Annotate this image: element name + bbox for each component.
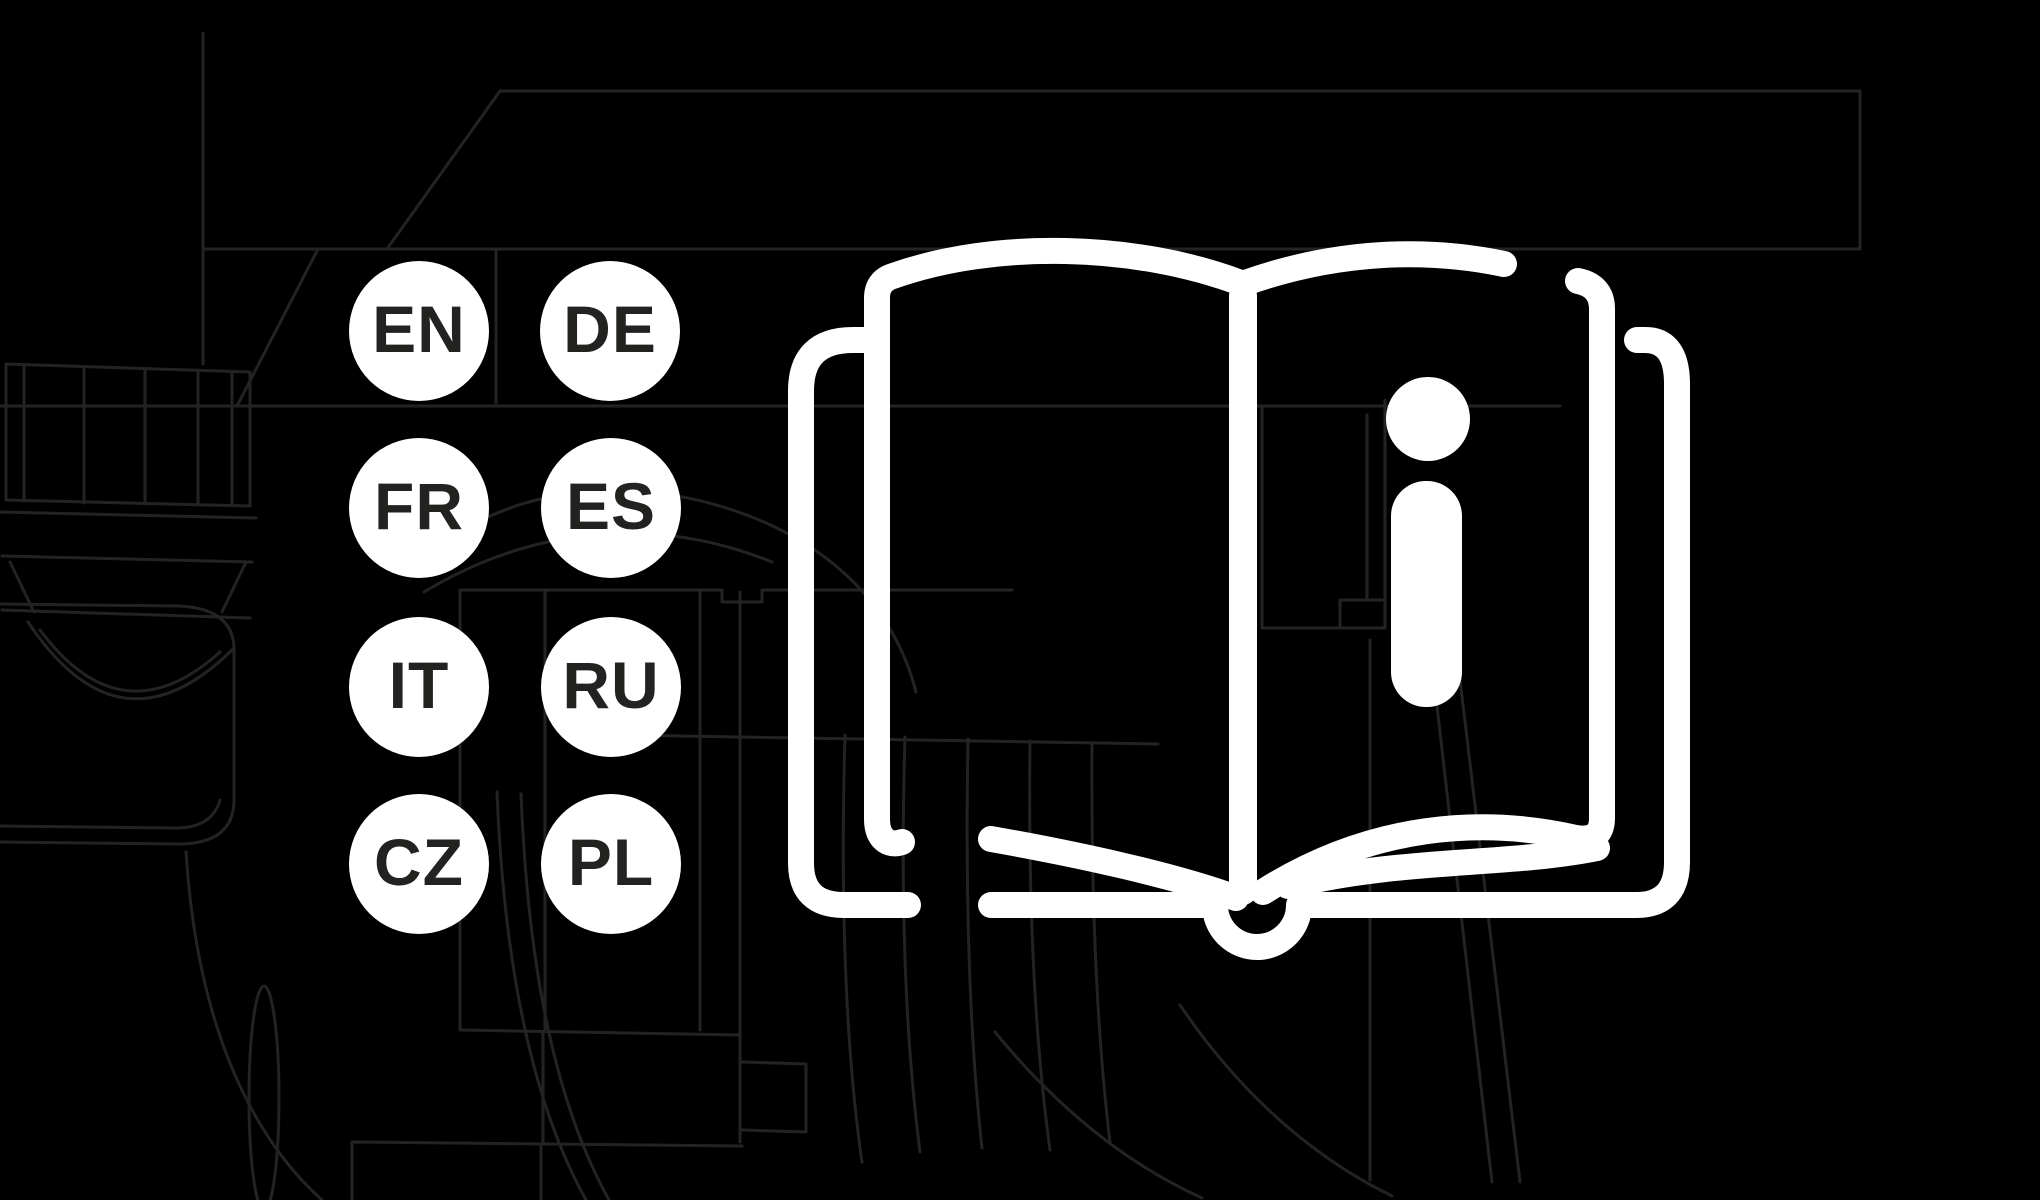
language-code-label: IT [389, 652, 450, 718]
book-left-cover [801, 340, 908, 905]
manual-cover: EN DE FR ES IT RU CZ PL [0, 0, 2040, 1200]
language-code-label: ES [566, 473, 656, 539]
language-code-label: FR [374, 473, 464, 539]
language-code-label: RU [562, 652, 659, 718]
language-code-label: EN [372, 296, 466, 362]
book-left-page-bottom-curl [991, 839, 1236, 898]
language-badge-en: EN [349, 261, 489, 401]
language-code-label: DE [563, 296, 657, 362]
language-badge-ru: RU [541, 617, 681, 757]
info-symbol-dot [1386, 377, 1470, 461]
info-symbol-stem [1391, 481, 1462, 707]
language-badge-fr: FR [349, 438, 489, 578]
language-badge-de: DE [540, 261, 680, 401]
info-symbol [1386, 377, 1470, 707]
language-badge-it: IT [349, 617, 489, 757]
book-right-page-top [1245, 254, 1504, 283]
language-code-label: CZ [374, 829, 464, 895]
book-left-page [877, 251, 1241, 843]
open-book-manual-icon [0, 0, 2040, 1200]
language-code-label: PL [568, 829, 654, 895]
language-badge-pl: PL [541, 794, 681, 934]
language-badge-cz: CZ [349, 794, 489, 934]
language-badge-es: ES [541, 438, 681, 578]
